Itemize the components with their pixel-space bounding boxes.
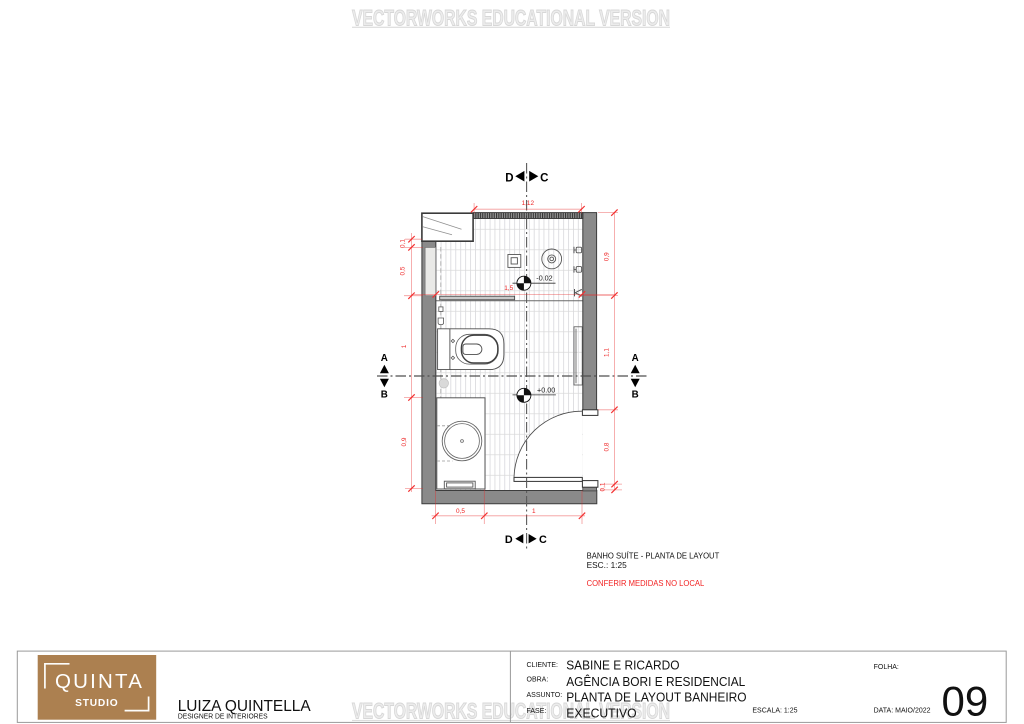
svg-text:1,1: 1,1 (603, 348, 610, 357)
svg-text:1: 1 (532, 508, 536, 515)
svg-text:LUIZA QUINTELLA: LUIZA QUINTELLA (178, 698, 311, 715)
svg-text:CONFERIR MEDIDAS NO LOCAL: CONFERIR MEDIDAS NO LOCAL (587, 578, 705, 588)
svg-text:0,8: 0,8 (603, 442, 610, 451)
svg-text:1,5: 1,5 (504, 285, 513, 292)
svg-text:OBRA:: OBRA: (527, 677, 549, 684)
svg-text:AGÊNCIA BORI E RESIDENCIAL: AGÊNCIA BORI E RESIDENCIAL (566, 674, 745, 689)
svg-text:0,1: 0,1 (600, 482, 607, 491)
svg-text:DESIGNER DE INTERIORES: DESIGNER DE INTERIORES (178, 713, 268, 720)
svg-text:FOLHA:: FOLHA: (874, 664, 899, 671)
svg-text:0,5: 0,5 (456, 508, 465, 515)
svg-text:PLANTA DE LAYOUT BANHEIRO: PLANTA DE LAYOUT BANHEIRO (566, 690, 746, 705)
svg-text:D: D (505, 172, 513, 184)
svg-text:B: B (381, 389, 388, 400)
svg-text:DATA: MAIO/2022: DATA: MAIO/2022 (874, 707, 931, 714)
svg-text:0,9: 0,9 (401, 437, 408, 446)
svg-text:BANHO SUÍTE - PLANTA DE LAYOUT: BANHO SUÍTE - PLANTA DE LAYOUT (587, 550, 720, 560)
svg-text:A: A (381, 353, 388, 364)
svg-text:C: C (539, 534, 547, 546)
svg-text:EXECUTIVO: EXECUTIVO (566, 706, 636, 721)
svg-text:C: C (540, 172, 548, 184)
svg-text:FASE:: FASE: (527, 708, 547, 715)
svg-text:ESCALA: 1:25: ESCALA: 1:25 (752, 707, 797, 714)
svg-text:1,12: 1,12 (522, 200, 535, 207)
svg-text:B: B (632, 389, 639, 400)
svg-text:CLIENTE:: CLIENTE: (527, 662, 559, 669)
svg-text:QUINTA: QUINTA (55, 670, 144, 693)
svg-text:0,9: 0,9 (603, 252, 610, 261)
svg-text:09: 09 (942, 677, 989, 724)
svg-text:D: D (505, 534, 513, 546)
svg-text:SABINE E RICARDO: SABINE E RICARDO (566, 658, 679, 673)
svg-text:+0.00: +0.00 (537, 385, 555, 394)
svg-text:ESC.: 1:25: ESC.: 1:25 (587, 560, 628, 570)
svg-text:0,5: 0,5 (399, 266, 406, 275)
svg-text:ASSUNTO:: ASSUNTO: (527, 692, 563, 699)
svg-text:VECTORWORKS EDUCATIONAL VERSIO: VECTORWORKS EDUCATIONAL VERSION (352, 5, 670, 30)
svg-text:1: 1 (401, 344, 408, 348)
svg-text:STUDIO: STUDIO (75, 698, 118, 709)
svg-text:A: A (632, 353, 639, 364)
svg-text:-0.02: -0.02 (536, 274, 552, 283)
svg-text:0,1: 0,1 (399, 239, 406, 248)
